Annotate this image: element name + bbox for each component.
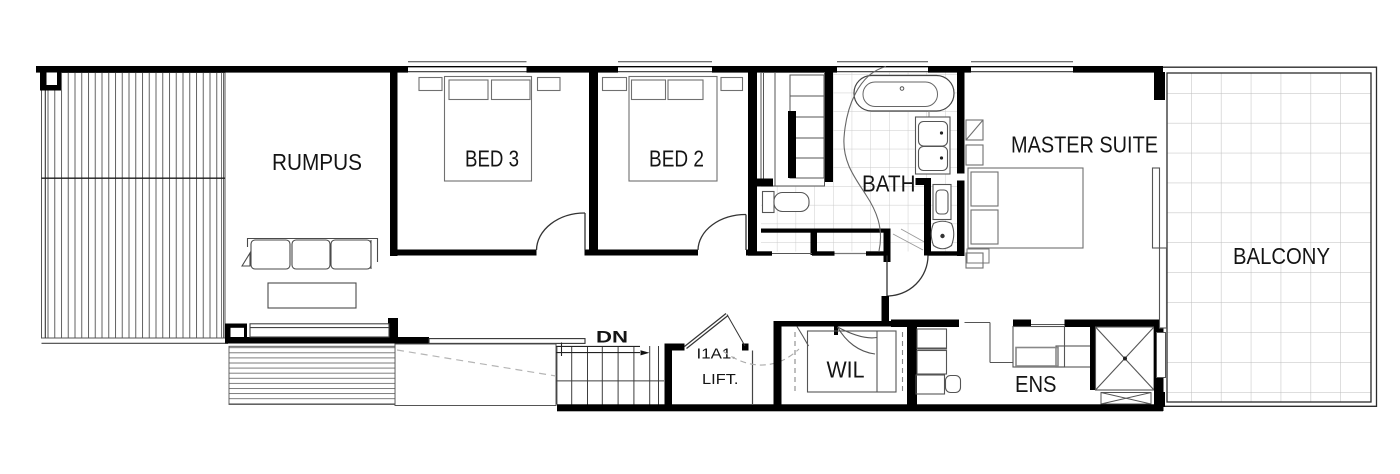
svg-text:BED 3: BED 3 [465, 146, 519, 172]
svg-text:I1A1.: I1A1. [697, 347, 737, 363]
svg-text:DN: DN [596, 329, 628, 347]
svg-text:MASTER SUITE: MASTER SUITE [1011, 132, 1158, 158]
svg-text:ENS: ENS [1015, 371, 1057, 397]
svg-text:BALCONY: BALCONY [1233, 243, 1330, 269]
svg-text:RUMPUS: RUMPUS [272, 149, 362, 175]
svg-text:BATH: BATH [862, 171, 916, 197]
svg-text:WIL: WIL [827, 357, 865, 383]
svg-text:LIFT.: LIFT. [702, 372, 739, 388]
svg-text:BED 2: BED 2 [649, 146, 704, 172]
